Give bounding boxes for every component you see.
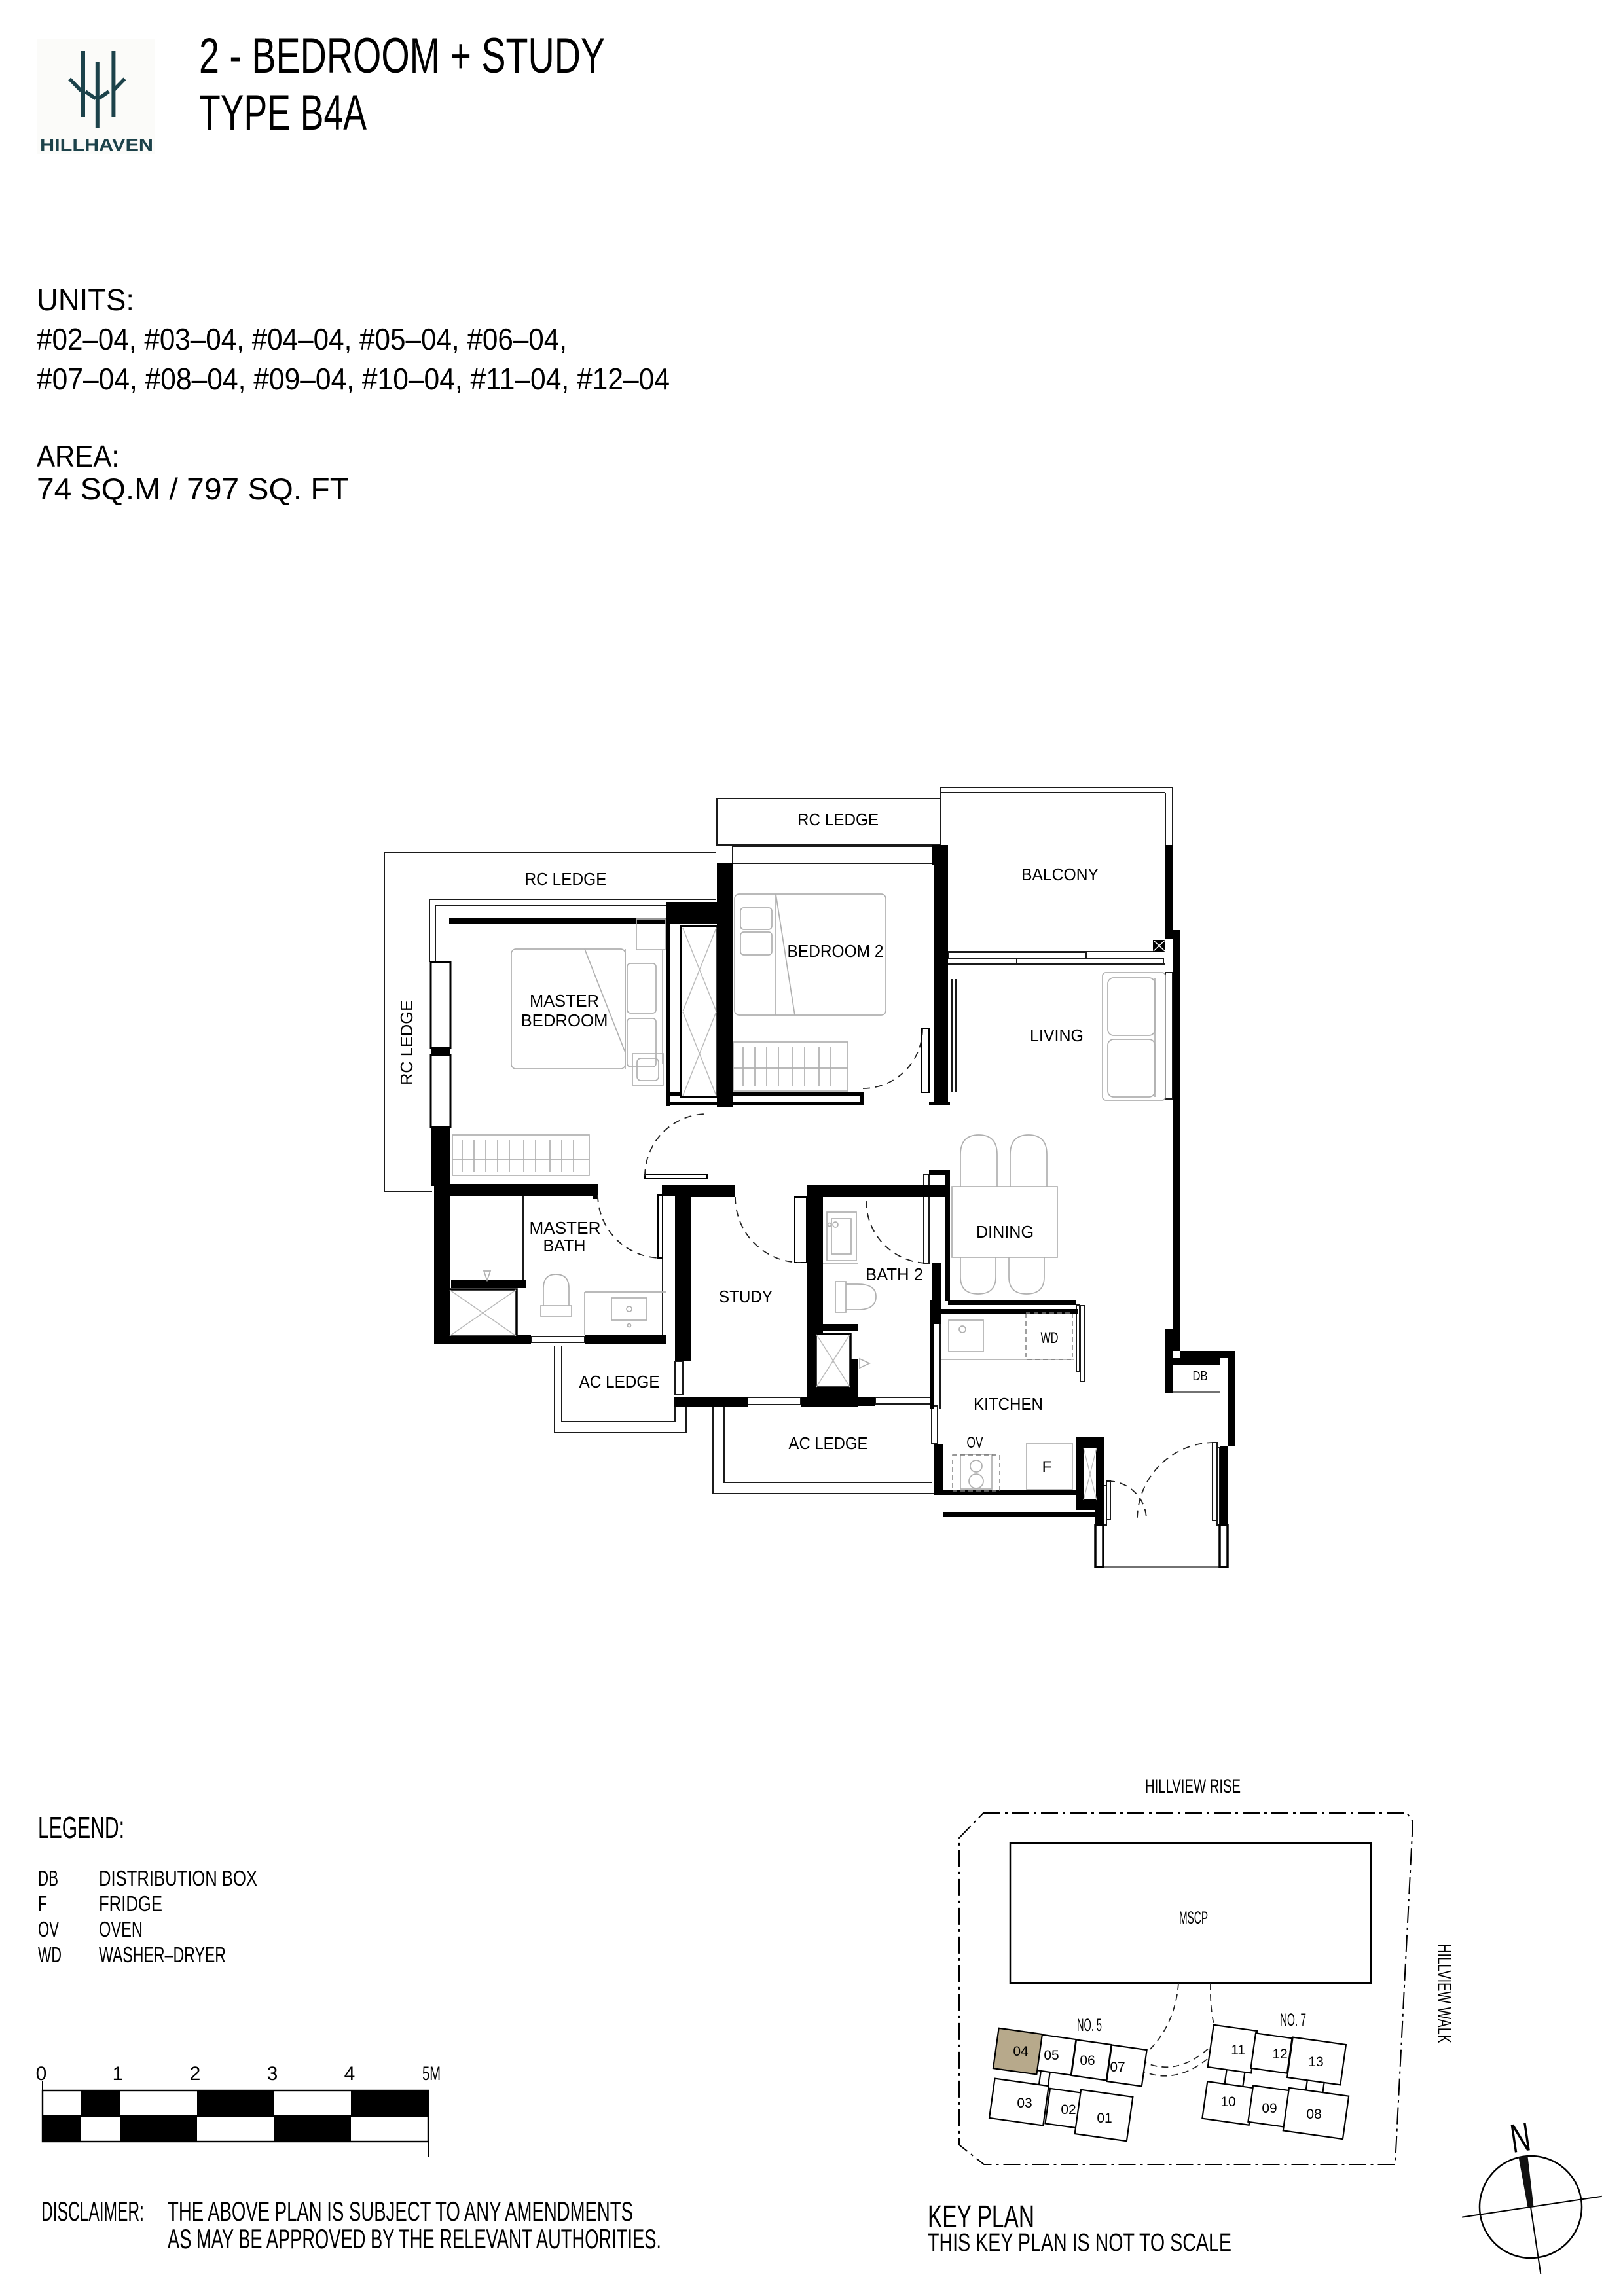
svg-text:STUDY: STUDY <box>719 1287 773 1306</box>
svg-text:#02–04, #03–04, #04–04, #05: #02–04, #03–04, #04–04, #05–04, #06–04, <box>37 322 567 356</box>
svg-text:BEDROOM: BEDROOM <box>521 1011 608 1030</box>
svg-text:10: 10 <box>1220 2094 1235 2109</box>
svg-text:13: 13 <box>1308 2054 1323 2070</box>
svg-text:WASHER–DRYER: WASHER–DRYER <box>99 1943 226 1967</box>
svg-text:FRIDGE: FRIDGE <box>99 1892 162 1916</box>
svg-text:05: 05 <box>1044 2048 1059 2063</box>
svg-text:0: 0 <box>36 2063 47 2085</box>
svg-text:2 - BEDROOM + STUDY: 2 - BEDROOM + STUDY <box>199 28 605 84</box>
svg-text:BATH: BATH <box>543 1236 586 1255</box>
svg-text:04: 04 <box>1013 2044 1029 2059</box>
svg-text:07: 07 <box>1110 2060 1125 2075</box>
svg-text:NO. 7: NO. 7 <box>1280 2010 1306 2030</box>
svg-text:RC LEDGE: RC LEDGE <box>397 1000 416 1085</box>
svg-text:12: 12 <box>1272 2047 1287 2062</box>
svg-text:02: 02 <box>1061 2102 1076 2117</box>
svg-text:NO. 5: NO. 5 <box>1077 2015 1102 2035</box>
svg-text:DB: DB <box>38 1866 58 1890</box>
svg-text:BEDROOM 2: BEDROOM 2 <box>788 941 884 961</box>
svg-text:RC LEDGE: RC LEDGE <box>525 869 607 889</box>
svg-text:TYPE B4A: TYPE B4A <box>199 85 367 141</box>
svg-text:MSCP: MSCP <box>1179 1908 1208 1928</box>
svg-text:06: 06 <box>1080 2053 1095 2068</box>
svg-text:THIS KEY PLAN IS NOT TO: THIS KEY PLAN IS NOT TO SCALE <box>928 2229 1231 2257</box>
svg-text:HILLHAVEN: HILLHAVEN <box>40 135 153 154</box>
svg-text:WD: WD <box>1041 1329 1059 1347</box>
svg-text:MASTER: MASTER <box>530 991 599 1011</box>
svg-text:1: 1 <box>113 2063 124 2085</box>
svg-text:DISCLAIMER:: DISCLAIMER: <box>41 2196 144 2227</box>
svg-text:AC LEDGE: AC LEDGE <box>789 1433 868 1453</box>
svg-text:WD: WD <box>38 1943 62 1967</box>
svg-text:F: F <box>1042 1458 1052 1476</box>
svg-text:HILLVIEW RISE: HILLVIEW RISE <box>1145 1776 1241 1797</box>
svg-text:01: 01 <box>1097 2111 1112 2126</box>
svg-text:HILLVIEW WALK: HILLVIEW WALK <box>1433 1944 1455 2043</box>
svg-text:BATH 2: BATH 2 <box>866 1265 923 1284</box>
svg-text:OVEN: OVEN <box>99 1917 143 1941</box>
svg-text:F: F <box>38 1892 47 1916</box>
svg-text:2: 2 <box>190 2063 201 2085</box>
svg-text:4: 4 <box>344 2063 356 2085</box>
svg-text:11: 11 <box>1231 2043 1245 2058</box>
svg-text:DINING: DINING <box>976 1222 1034 1242</box>
svg-text:OV: OV <box>38 1917 59 1941</box>
svg-text:THE ABOVE PLAN IS SUBJECT: THE ABOVE PLAN IS SUBJECT TO ANY AMENDME… <box>168 2196 633 2227</box>
svg-text:#07–04, #08–04, #09–04, #10: #07–04, #08–04, #09–04, #10–04, #11–04, … <box>37 362 670 396</box>
svg-text:MASTER: MASTER <box>530 1218 601 1238</box>
svg-text:UNITS:: UNITS: <box>37 283 134 317</box>
svg-text:AS MAY BE APPROVED BY THE: AS MAY BE APPROVED BY THE RELEVANT AUTHO… <box>168 2223 661 2254</box>
svg-text:RC LEDGE: RC LEDGE <box>797 810 879 829</box>
svg-text:DB: DB <box>1193 1369 1208 1384</box>
svg-text:LIVING: LIVING <box>1030 1026 1084 1045</box>
svg-text:03: 03 <box>1017 2096 1032 2111</box>
svg-text:3: 3 <box>267 2063 278 2085</box>
svg-text:5M: 5M <box>422 2063 441 2085</box>
svg-text:LEGEND:: LEGEND: <box>38 1810 124 1844</box>
svg-text:KITCHEN: KITCHEN <box>974 1394 1043 1414</box>
svg-text:DISTRIBUTION BOX: DISTRIBUTION BOX <box>99 1866 257 1890</box>
svg-text:09: 09 <box>1262 2101 1277 2116</box>
svg-text:AREA:: AREA: <box>37 439 119 473</box>
svg-text:08: 08 <box>1306 2107 1321 2122</box>
svg-text:74 SQ.M / 797 SQ. FT: 74 SQ.M / 797 SQ. FT <box>37 472 349 506</box>
svg-text:OV: OV <box>967 1434 983 1452</box>
svg-text:AC LEDGE: AC LEDGE <box>579 1372 660 1391</box>
svg-text:BALCONY: BALCONY <box>1021 865 1099 884</box>
